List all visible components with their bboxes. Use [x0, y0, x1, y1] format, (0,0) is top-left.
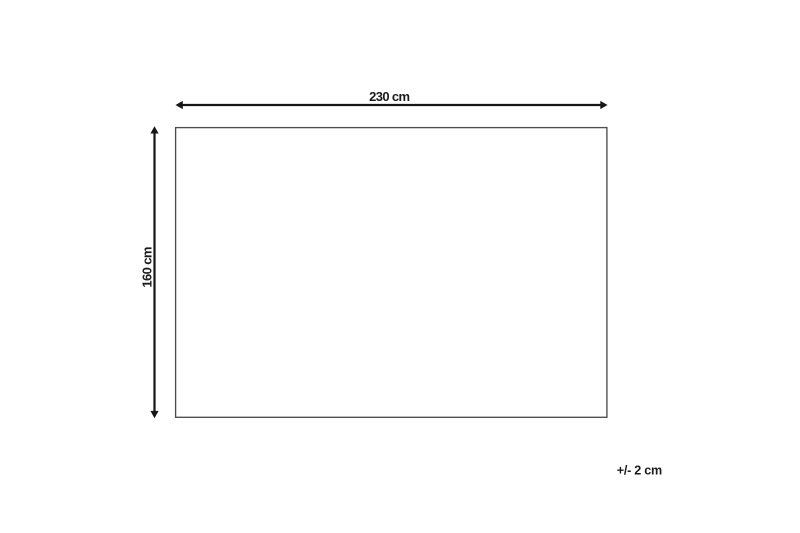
svg-text:+/- 2 cm: +/- 2 cm	[617, 464, 663, 478]
svg-text:160 cm: 160 cm	[139, 247, 154, 288]
svg-text:230 cm: 230 cm	[369, 89, 410, 104]
